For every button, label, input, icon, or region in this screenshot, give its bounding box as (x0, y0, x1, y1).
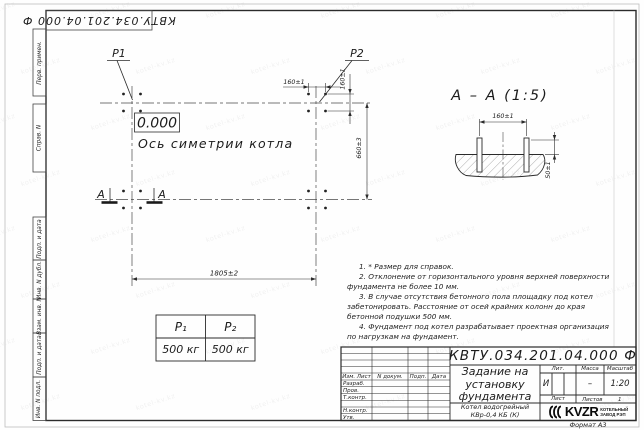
top-doc-number: КВТУ.034.201.04.000 Ф (46, 11, 152, 31)
kvzr-spring-icon (548, 405, 563, 419)
margin-field-vzam-inv: Взам. инв. N (33, 299, 46, 333)
note-1: 1. * Размер для справок. (347, 262, 615, 272)
titleblock-mass-header: Масса (576, 365, 604, 373)
titleblock-logo: KVZR КОТЕЛЬНЫЙ ЗАВОД РЭП (540, 403, 636, 421)
titleblock-sign-razrab: Разраб. (343, 381, 372, 387)
load-table-header-p2: P₂ (206, 315, 256, 338)
margin-field-podp-data-2: Подп. и дата (33, 333, 46, 377)
titleblock-rev-header-ndokum: N докум. (372, 373, 408, 380)
note-3: 3. В случае отсутствия бетонного пола пл… (347, 292, 615, 322)
titleblock-lit-value: И (540, 373, 552, 395)
note-2: 2. Отклонение от горизонтального уровня … (347, 272, 615, 292)
format-label: Формат А3 (540, 421, 636, 430)
titleblock-scale-header: Масштаб (604, 365, 636, 373)
titleblock-sheet-label: Лист (540, 395, 576, 403)
load-table-header-p1: P₁ (156, 315, 206, 338)
drawing-sheet: kotel-kv.kzkotel-kv.kzkotel-kv.kzkotel-k… (0, 0, 644, 430)
titleblock-product: Котел водогрейный КВр-0,4 КБ (К) (450, 403, 540, 421)
margin-field-inv-podl: Инв. N подл. (33, 377, 46, 421)
titleblock-title: Задание на установку фундамента (450, 366, 540, 404)
margin-field-sprav-n: Справ. N (33, 104, 46, 172)
note-4: 4. Фундамент под котел разрабатывает про… (347, 322, 615, 342)
titleblock-rev-header-data: Дата (428, 373, 450, 380)
titleblock-rev-header-podp: Подп. (408, 373, 428, 380)
titleblock-sheets-label: Листов (582, 397, 603, 403)
titleblock-lit-header: Лит. (540, 365, 576, 373)
titleblock-doc-number: КВТУ.034.201.04.000 Ф (450, 347, 636, 365)
margin-field-perv-primen: Перв. примен. (33, 29, 46, 96)
titleblock-sign-utv: Утв. (343, 415, 372, 421)
titleblock-mass-value: – (576, 373, 604, 395)
kvzr-logo-subtext: КОТЕЛЬНЫЙ ЗАВОД РЭП (600, 407, 628, 417)
text-overlay: КВТУ.034.201.04.000 Ф Перв. примен. Спра… (0, 0, 644, 430)
load-table-value-p1: 500 кг (156, 338, 206, 361)
margin-field-podp-data-1: Подп. и дата (33, 217, 46, 260)
kvzr-logo-text: KVZR (565, 404, 598, 419)
margin-field-inv-dubl: Инв. N дубл. (33, 260, 46, 299)
titleblock-sign-tkontr: Т.контр. (343, 395, 372, 401)
titleblock-rev-header-izm: Изм. Лист (341, 373, 372, 380)
titleblock-scale-value: 1:20 (604, 373, 636, 395)
load-table-value-p2: 500 кг (206, 338, 256, 361)
notes-block: 1. * Размер для справок. 2. Отклонение о… (347, 262, 615, 342)
titleblock-sign-prov: Пров. (343, 388, 372, 394)
titleblock-sheets-value: 1 (618, 397, 622, 403)
titleblock-sign-nkontr: Н.контр. (343, 408, 372, 414)
